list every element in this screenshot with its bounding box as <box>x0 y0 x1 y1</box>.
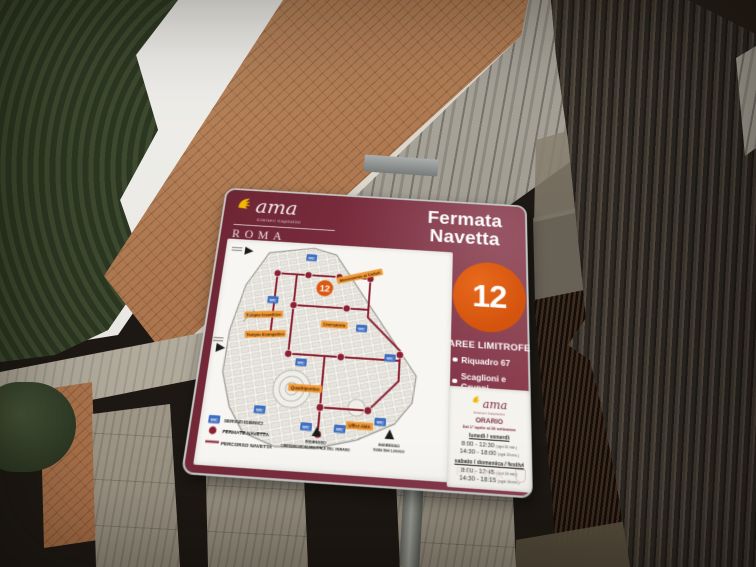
arrow-icon <box>385 429 395 439</box>
route-line-icon <box>205 440 219 443</box>
sign-title: Fermata Navetta <box>406 208 523 252</box>
ama-hand-icon <box>235 196 253 216</box>
wc-icon: WC <box>308 256 315 260</box>
bullet-dot-icon <box>453 357 458 362</box>
sign-board: ama Cimiteri Capitolini ROMA Fermata Nav… <box>181 188 533 499</box>
entrance-name: Scala San Lorenzo <box>373 447 404 454</box>
aree-item-label: Riquadro 67 <box>461 355 510 368</box>
schedule-brand-name: ama <box>483 398 508 411</box>
wc-icon: WC <box>269 298 276 302</box>
bullet-dot-icon <box>452 378 457 383</box>
stop-dot-icon <box>208 426 217 434</box>
wc-icon: WC <box>336 427 344 432</box>
arrow-icon <box>244 247 254 256</box>
cemetery-map: 12 WC WC WC WC WC WC WC WC WC <box>193 238 453 482</box>
roma-crest-icon <box>515 469 526 483</box>
ama-hand-icon <box>471 390 481 409</box>
wc-icon: WC <box>297 361 304 366</box>
wc-icon: WC <box>302 425 310 430</box>
svg-text:12: 12 <box>319 283 330 293</box>
stop-number-badge: 12 <box>452 261 526 335</box>
map-label: Tempio Evangelico <box>246 331 285 337</box>
shuttle-stop-sign: ama Cimiteri Capitolini ROMA Fermata Nav… <box>181 188 533 499</box>
wc-icon: WC <box>256 408 264 413</box>
wc-icon: WC <box>387 356 394 361</box>
wc-icon: WC <box>358 327 365 332</box>
street-photo-scene: ama Cimiteri Capitolini ROMA Fermata Nav… <box>0 0 756 567</box>
cemetery-map-svg: 12 WC WC WC WC WC WC WC WC WC <box>193 238 453 482</box>
brand-name: ama <box>255 198 299 218</box>
svg-text:WC: WC <box>210 417 218 422</box>
aree-limitrofe-heading: AREE LIMITROFE <box>446 338 533 354</box>
entrance-name: CIMITERO MONUMENTALE DEL VERANO <box>281 443 351 452</box>
arrow-icon <box>215 343 225 353</box>
list-item: Riquadro 67 <box>452 354 534 369</box>
wc-icon: WC <box>377 420 385 425</box>
